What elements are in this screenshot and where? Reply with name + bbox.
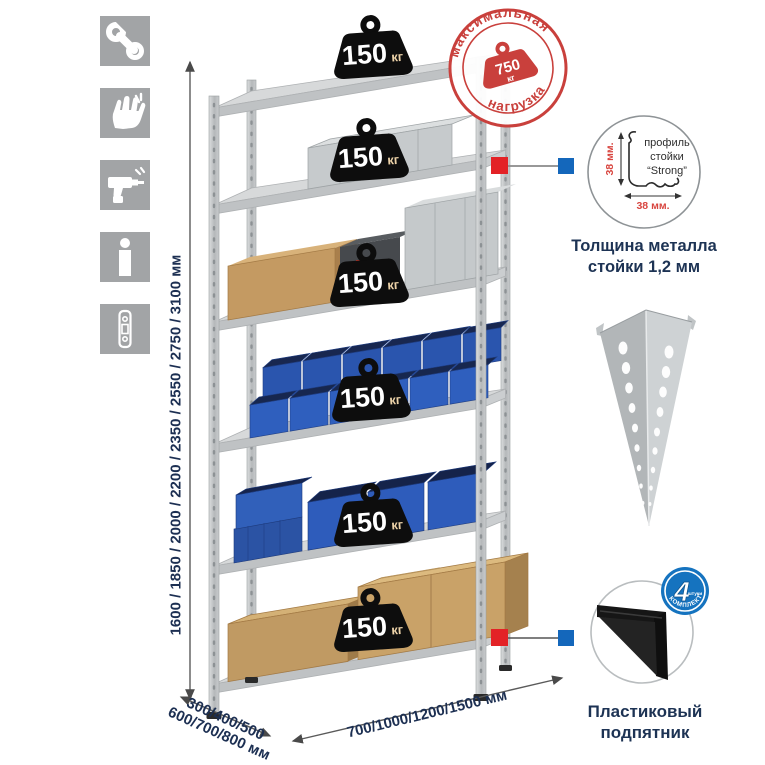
foot-callout-connector bbox=[491, 629, 574, 646]
callout-red-square-top bbox=[491, 157, 508, 174]
callout-red-square-bottom bbox=[491, 629, 508, 646]
height-dimension-label: 1600 / 1850 / 2000 / 2200 / 2350 / 2550 … bbox=[168, 255, 185, 636]
kit-quantity-badge: 4 штуки В КОМПЛЕКТЕ bbox=[659, 565, 711, 617]
product-infographic: 150кг 150кг 150кг 150кг 150кг bbox=[0, 0, 765, 765]
callout-blue-square-bottom bbox=[558, 630, 574, 646]
dimension-overlay bbox=[0, 0, 765, 765]
callout-blue-square-top bbox=[558, 158, 574, 174]
profile-callout-connector bbox=[491, 157, 574, 174]
